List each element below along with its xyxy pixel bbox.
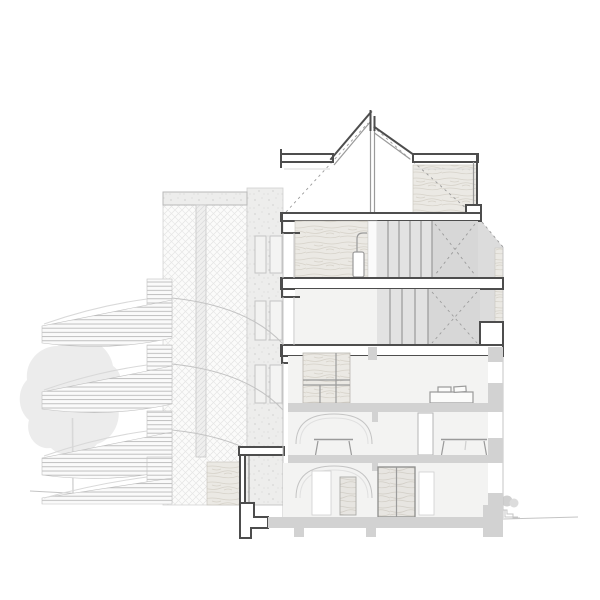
floor3 — [295, 289, 503, 347]
balcony-wall-cut — [240, 455, 245, 503]
window-opening — [312, 471, 331, 515]
bay-window-cut — [480, 322, 503, 347]
ground-floor-slab-gray — [288, 455, 503, 463]
wood-clad-base — [207, 462, 241, 505]
floor2 — [288, 347, 503, 412]
bush — [502, 496, 519, 508]
architectural-section — [0, 0, 600, 600]
building-section — [268, 111, 503, 537]
concrete-base-panel — [245, 455, 283, 505]
balcony-slab — [239, 447, 284, 455]
support-post — [196, 205, 206, 457]
facade-pier — [488, 438, 503, 457]
wood-door-narrow — [340, 477, 356, 515]
gable-left-slope — [331, 112, 371, 165]
facade-pier — [488, 347, 503, 362]
section-drawing-canvas — [0, 0, 600, 600]
gable-right-slope — [375, 127, 415, 159]
wardrobe — [303, 353, 350, 403]
door-opening-right — [419, 472, 434, 515]
floor1-slab-gray — [288, 403, 503, 412]
floor1 — [288, 412, 503, 457]
floor3-slab — [281, 278, 503, 289]
attic-floor-slab — [281, 213, 481, 221]
foundation-footing — [240, 503, 268, 538]
exterior-steps — [501, 506, 520, 518]
left-flat-roof — [281, 150, 333, 167]
top-parapet — [163, 192, 247, 205]
door-opening — [418, 413, 433, 455]
attic — [284, 123, 477, 214]
floor4 — [295, 221, 478, 278]
wood-double-door — [378, 467, 415, 517]
